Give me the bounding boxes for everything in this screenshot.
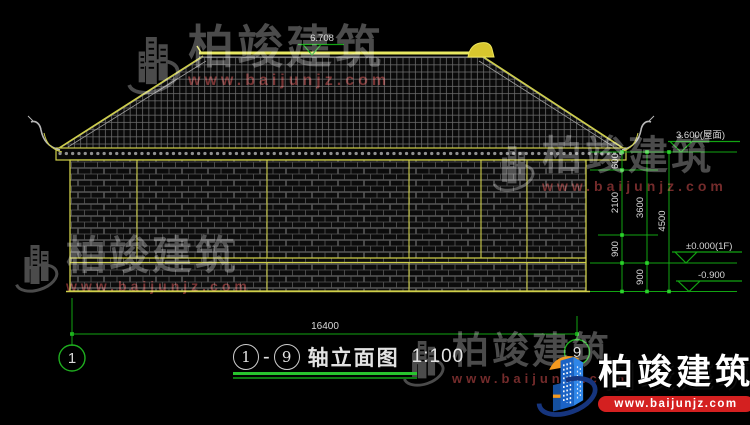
watermark-url: www.baijunjz.com [188,72,390,90]
title-underline-primary [233,372,417,375]
title-scale: 1:100 [412,346,465,368]
baijun-watermark-icon [126,24,184,108]
level-floor: ±0.000(1F) [686,241,732,252]
title-underline-secondary [233,377,417,379]
dim-16400: 16400 [311,321,339,332]
ridge-ornament [468,43,494,57]
company-logo: 柏竣建筑 www.baijunjz.com [536,350,750,424]
dim-4500: 4500 [657,210,668,231]
watermark-brand: 柏竣建筑 [66,236,251,276]
watermark-url: www.baijunjz.com [66,278,251,294]
dim-900-lower: 900 [635,269,646,285]
watermark-brand: 柏竣建筑 [188,24,390,70]
left-eave-curl [28,116,62,152]
logo-url-bar: www.baijunjz.com [598,396,750,412]
drawing-title: 1 - 9 轴立面图 1:100 [233,342,464,372]
cad-viewport[interactable]: 600 2100 900 3600 900 4500 6.708 3.600(屋… [0,0,750,425]
watermark-left: 柏竣建筑 www.baijunjz.com [14,236,251,302]
watermark-brand: 柏竣建筑 [542,136,727,176]
baijun-watermark-icon [492,136,538,202]
title-dash: - [263,346,270,369]
baijun-watermark-icon [14,236,62,302]
logo-brand: 柏竣建筑 [598,350,750,396]
title-axis-end: 9 [274,344,300,370]
dim-900-upper: 900 [610,241,621,257]
watermark-url: www.baijunjz.com [542,178,727,194]
level-ground: -0.900 [698,270,725,281]
watermark-top-left: 柏竣建筑 www.baijunjz.com [126,24,390,108]
title-axis-start: 1 [233,344,259,370]
company-logo-icon [536,350,602,424]
title-label: 轴立面图 [308,342,400,372]
watermark-right: 柏竣建筑 www.baijunjz.com [492,136,727,202]
axis-bubble-1: 1 [68,350,76,367]
